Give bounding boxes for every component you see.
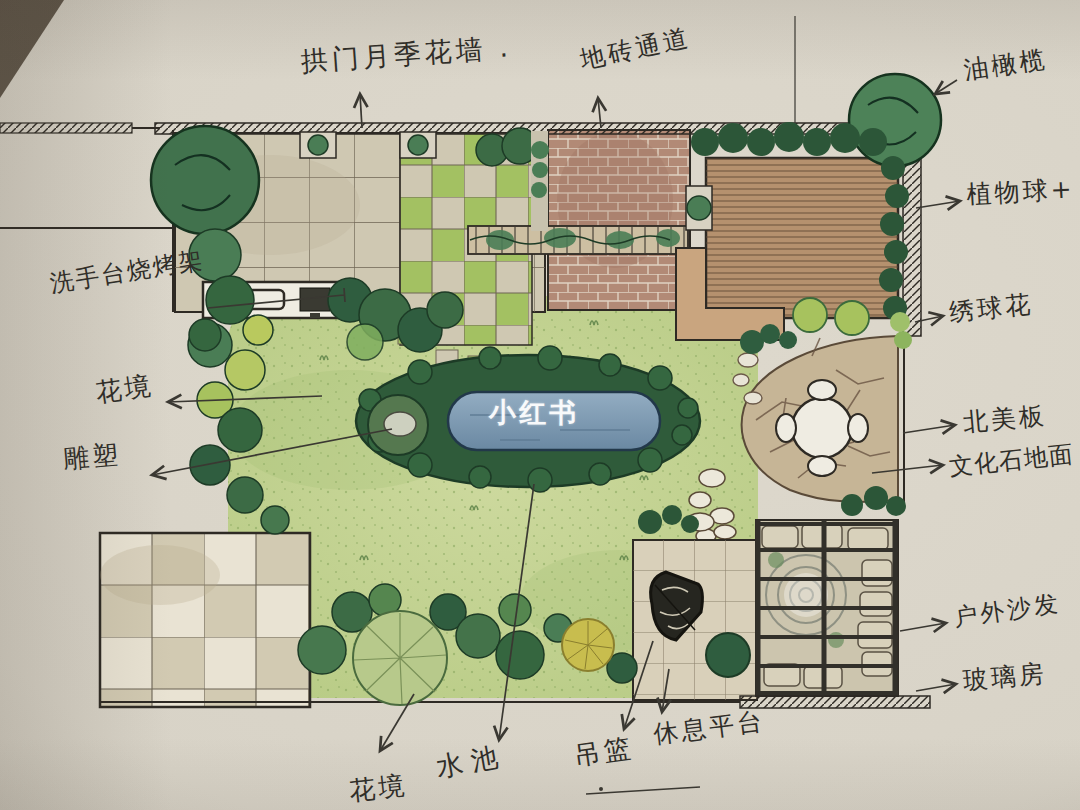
olive-tree <box>849 74 941 166</box>
tree-top-left <box>151 126 259 234</box>
platform-shrub <box>706 633 750 677</box>
ball-shrub <box>793 298 827 332</box>
brick-paving <box>548 130 690 310</box>
ink-dot <box>599 787 603 791</box>
pond-water <box>448 392 660 450</box>
checker-patio <box>100 533 310 707</box>
ball-shrub <box>835 301 869 335</box>
canopy-tree <box>353 611 447 705</box>
garden-plan-drawing <box>0 0 1080 810</box>
rest-platform <box>633 540 757 700</box>
arbor-trellis <box>468 226 688 254</box>
garden-plan-photo: 拱门月季花墙 . 地砖通道 油橄榄 植物球+ 绣球花 北美板 文化石地面 户外沙… <box>0 0 1080 810</box>
yellow-shrub <box>562 619 614 671</box>
hanging-chair <box>651 572 703 640</box>
photo-corner-shadow <box>0 0 64 98</box>
glass-house <box>756 520 898 696</box>
